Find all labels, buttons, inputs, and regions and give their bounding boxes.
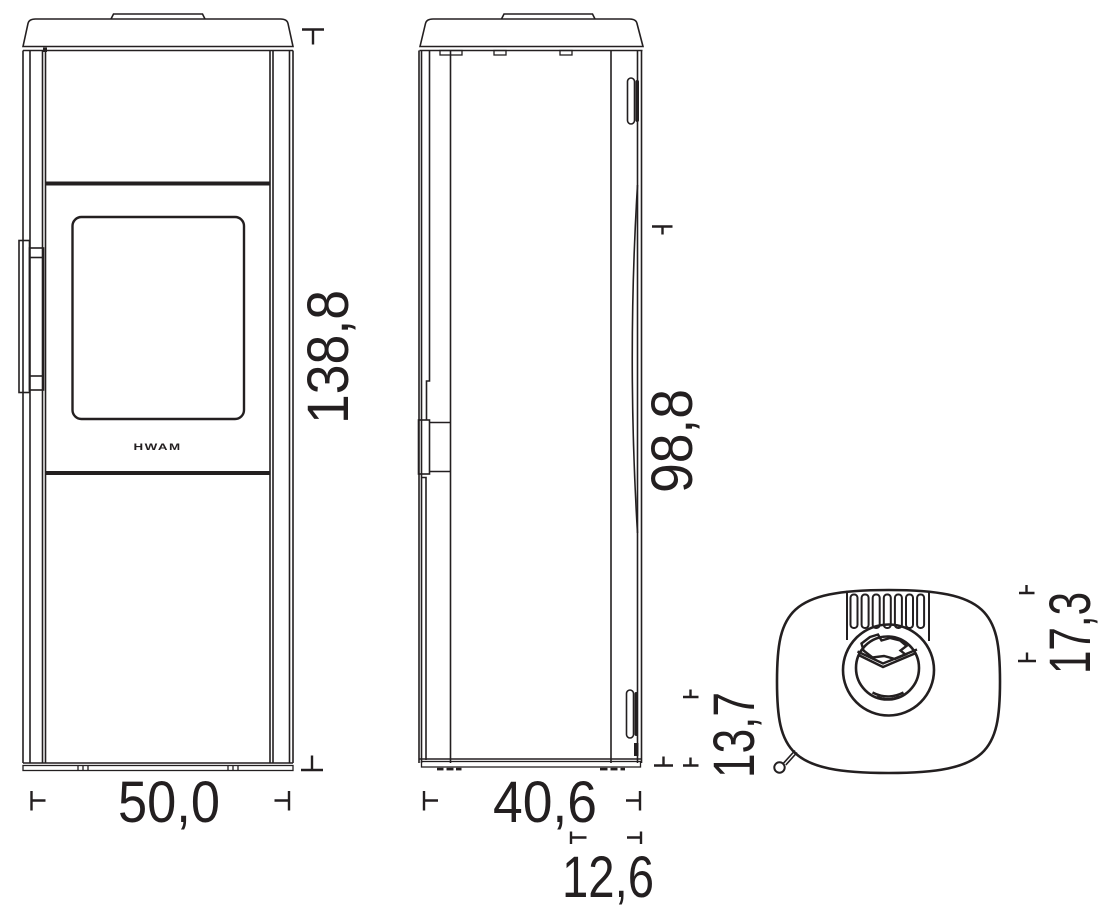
side-base <box>419 759 642 770</box>
dimension-top-flue-offset: 17,3 <box>1018 585 1101 674</box>
door-window <box>73 217 245 419</box>
dim-tick <box>302 30 324 45</box>
front-lid <box>23 19 293 47</box>
side-view <box>419 14 644 770</box>
front-lid-latch <box>43 48 47 53</box>
top-view <box>774 590 1000 773</box>
dim-label-front-width: 50,0 <box>118 770 220 835</box>
brand-logo: HWAM <box>134 442 182 453</box>
dim-tick <box>32 791 46 811</box>
dim-tick <box>683 690 699 698</box>
dim-tick <box>1019 585 1035 593</box>
side-rear-vent-bottom <box>627 690 639 756</box>
top-handle <box>774 751 797 773</box>
dim-label-front-height: 138,8 <box>296 290 361 424</box>
dimension-side-depth: 40,6 <box>424 770 640 835</box>
stove-dimension-drawing: HWAM <box>0 0 1101 913</box>
dim-tick <box>626 791 640 811</box>
dim-tick <box>652 227 673 235</box>
dim-tick <box>424 791 438 811</box>
top-body-outline <box>777 590 1000 773</box>
dim-label-side-depth: 40,6 <box>493 770 597 835</box>
drawing-canvas: HWAM <box>0 0 1101 913</box>
side-rear-vent-top <box>628 78 640 124</box>
side-body-panels <box>419 51 643 764</box>
front-body-panels <box>23 48 293 764</box>
dim-tick <box>627 832 641 845</box>
side-lid <box>420 19 643 47</box>
front-view: HWAM <box>19 14 293 771</box>
dim-tick <box>301 756 323 771</box>
dim-label-side-rear-height: 98,8 <box>640 389 705 493</box>
dimension-side-rear-clearance: 13,7 <box>683 690 767 779</box>
dimension-front-width: 50,0 <box>32 770 290 835</box>
dim-tick <box>654 757 673 766</box>
dimension-side-bottom-offset: 12,6 <box>562 832 654 911</box>
dimension-side-rear-height: 98,8 <box>640 227 705 766</box>
dim-tick <box>683 758 699 766</box>
dim-label-top-flue-offset: 17,3 <box>1038 592 1101 674</box>
dim-label-side-rear-clearance: 13,7 <box>702 692 767 778</box>
dimension-front-height: 138,8 <box>296 30 361 771</box>
top-flue-collar <box>843 625 934 716</box>
dim-tick <box>1018 653 1036 662</box>
dim-tick <box>275 791 290 811</box>
side-handle-profile <box>419 420 451 760</box>
dim-label-side-bottom-offset: 12,6 <box>562 845 654 910</box>
front-door: HWAM <box>46 184 271 474</box>
